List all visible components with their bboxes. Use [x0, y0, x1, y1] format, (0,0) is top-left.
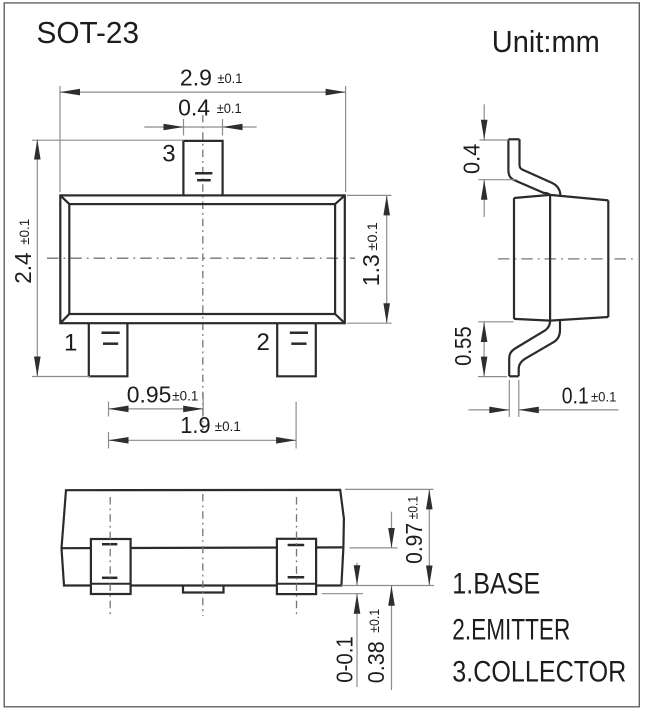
- svg-text:0.97: 0.97: [401, 523, 427, 564]
- svg-text:2.4: 2.4: [10, 252, 36, 284]
- svg-text:2.EMITTER: 2.EMITTER: [452, 614, 570, 647]
- svg-text:1: 1: [64, 330, 77, 357]
- svg-text:0.95: 0.95: [127, 382, 172, 408]
- svg-text:±0.1: ±0.1: [367, 609, 382, 633]
- svg-text:±0.1: ±0.1: [172, 389, 198, 404]
- svg-text:2: 2: [257, 329, 270, 356]
- svg-text:0.55: 0.55: [450, 326, 476, 366]
- svg-text:0.4: 0.4: [178, 94, 210, 120]
- svg-text:±0.1: ±0.1: [217, 101, 242, 116]
- svg-text:0.38: 0.38: [363, 641, 389, 683]
- svg-text:3.COLLECTOR: 3.COLLECTOR: [452, 656, 626, 689]
- svg-text:Unit:mm: Unit:mm: [492, 24, 600, 59]
- svg-text:±0.1: ±0.1: [591, 389, 616, 404]
- svg-text:0-0.1: 0-0.1: [331, 636, 357, 682]
- svg-text:1.9: 1.9: [180, 412, 210, 438]
- svg-text:±0.1: ±0.1: [365, 222, 380, 251]
- svg-text:1.3: 1.3: [358, 254, 384, 286]
- svg-text:±0.1: ±0.1: [406, 496, 421, 520]
- svg-text:0.1: 0.1: [562, 382, 589, 408]
- svg-text:±0.1: ±0.1: [217, 71, 242, 86]
- svg-text:0.4: 0.4: [458, 144, 484, 174]
- svg-text:±0.1: ±0.1: [215, 419, 241, 434]
- svg-text:3: 3: [162, 141, 175, 168]
- svg-text:2.9: 2.9: [180, 65, 212, 91]
- svg-text:SOT-23: SOT-23: [37, 15, 140, 50]
- svg-text:±0.1: ±0.1: [17, 219, 32, 245]
- svg-text:1.BASE: 1.BASE: [452, 568, 540, 601]
